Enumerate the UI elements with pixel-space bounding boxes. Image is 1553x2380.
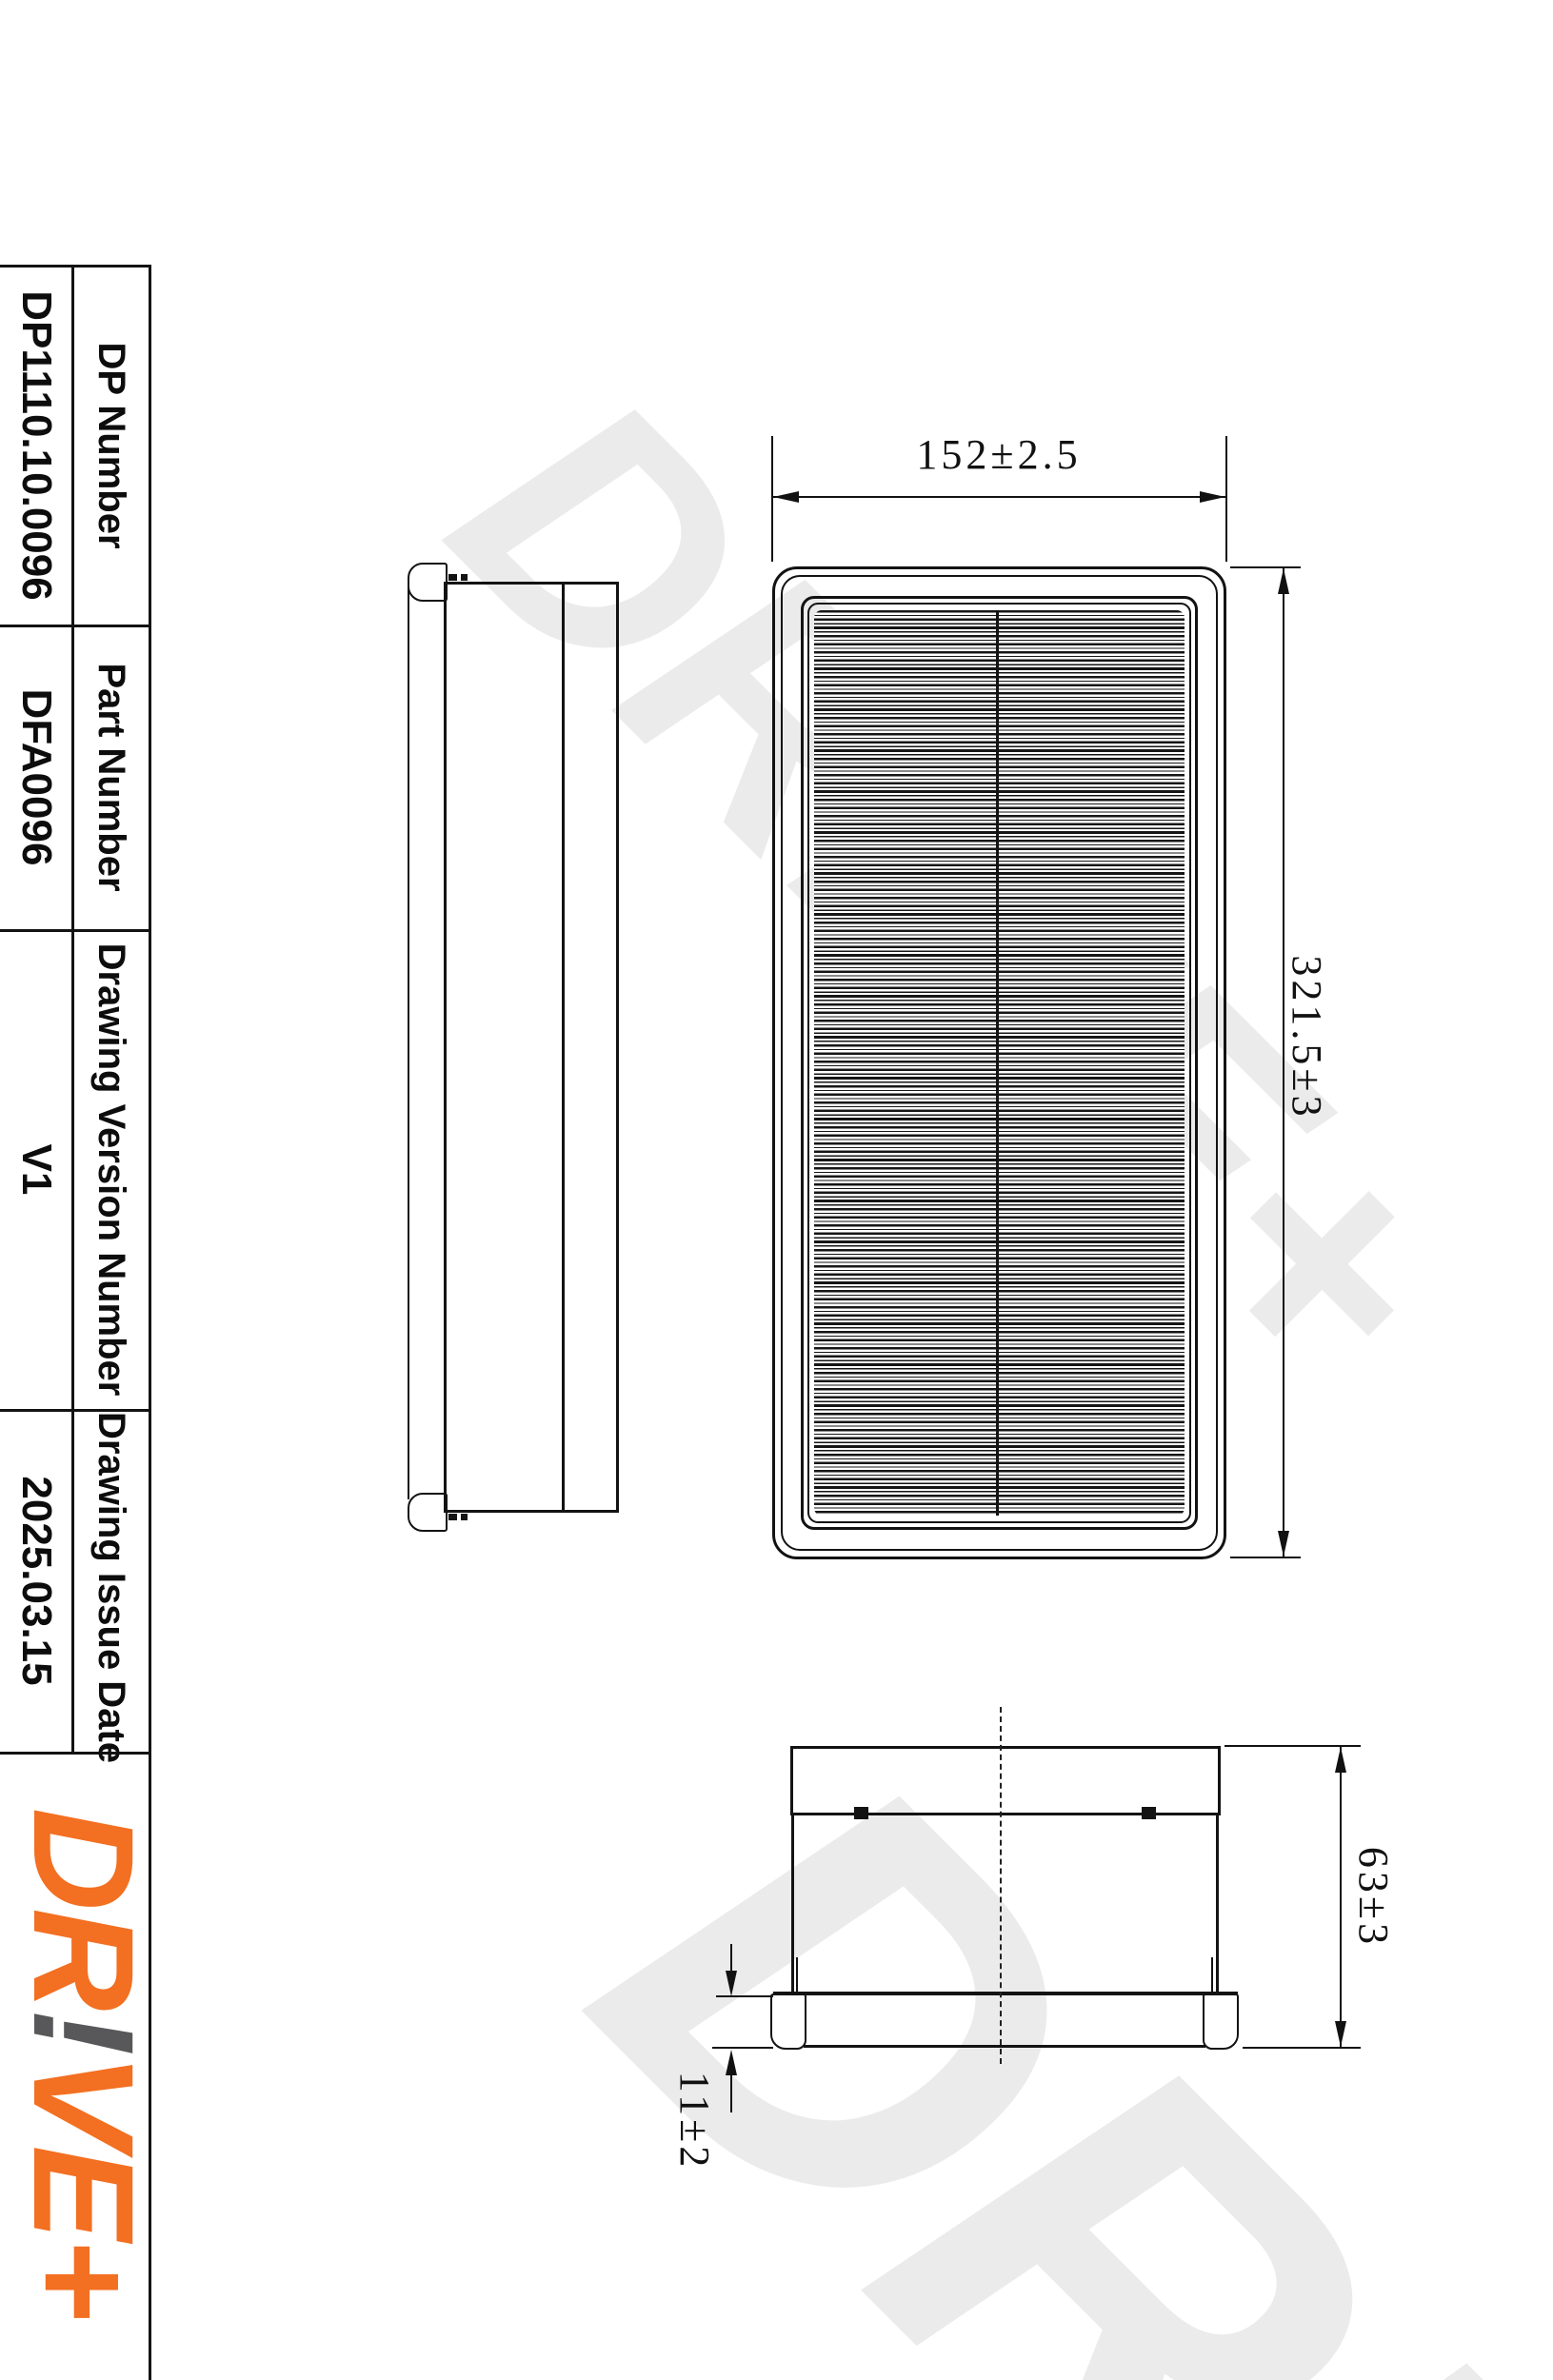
dim-length-text: 321.5±3	[1283, 904, 1331, 1171]
front-clip-tab	[1142, 1807, 1156, 1819]
front-media-band	[790, 1746, 1221, 1815]
dim-height-line	[1340, 1746, 1342, 2048]
front-clip-tab	[854, 1807, 868, 1819]
drawing-version-value: V1	[10, 932, 62, 1407]
side-view-tab-dash	[461, 574, 468, 581]
dim-height-text: 63±3	[1349, 1750, 1398, 2045]
plan-pleat-area	[814, 610, 1185, 1516]
dim-length-witness-bottom	[1230, 1557, 1301, 1558]
dp-number-label: DP Number	[88, 268, 135, 623]
titleblock-border-top	[0, 265, 151, 268]
dim-seal-ext-top	[716, 1995, 773, 1997]
side-view-left-outline	[408, 581, 409, 1499]
side-view-bottom-seal	[408, 1493, 448, 1532]
front-body-left	[791, 1815, 794, 1993]
part-number-label: Part Number	[88, 627, 135, 927]
dim-seal-arrow-down	[726, 1971, 737, 1996]
logo-exclamation: !	[4, 2009, 164, 2053]
dim-seal-text: 11±2	[670, 2035, 719, 2207]
dim-height-arrow-bottom	[1335, 2021, 1346, 2047]
issue-date-value: 2025.03.15	[10, 1412, 62, 1750]
brand-logo: DR!VE+	[0, 1763, 169, 2363]
dim-seal-leader-lower	[730, 2074, 732, 2112]
front-slot-mark	[796, 1957, 798, 1993]
front-slot-mark	[1211, 1957, 1213, 1993]
dim-length-arrow-top	[1278, 568, 1289, 594]
dp-number-value: DP1110.10.0096	[10, 268, 62, 623]
front-body-right	[1216, 1815, 1219, 1993]
dim-width-arrow-left	[773, 491, 799, 503]
front-gasket-bottom-line	[804, 2045, 1205, 2048]
issue-date-label: Drawing Issue Date	[88, 1412, 135, 1750]
dim-height-witness-bottom	[1243, 2047, 1361, 2049]
front-centerline	[1000, 1707, 1002, 2064]
dim-width-arrow-right	[1200, 491, 1225, 503]
logo-part2: VE+	[4, 2053, 164, 2318]
dim-width-witness-right	[1225, 436, 1227, 562]
titleblock-column-divider	[71, 265, 74, 1755]
dim-width-text: 152±2.5	[837, 430, 1161, 479]
dim-length-arrow-bottom	[1278, 1531, 1289, 1557]
side-view-tab-dash	[461, 1514, 468, 1520]
dim-length-witness-top	[1230, 566, 1301, 568]
dim-seal-arrow-up	[726, 2050, 737, 2075]
part-number-value: DFA0096	[10, 627, 62, 927]
dim-width-line	[772, 496, 1226, 498]
drawing-sheet: DR!VE+ DR!VE+ DP1110.10.0096 DP Number D…	[0, 0, 1553, 2380]
drawing-version-label: Drawing Version Number	[88, 932, 135, 1407]
side-view-top-seal	[408, 563, 448, 602]
side-view-frame-hatch-band	[562, 582, 619, 1513]
side-view-tab-dash	[448, 574, 457, 581]
side-view-tab-dash	[448, 1514, 457, 1520]
dim-height-arrow-top	[1335, 1747, 1346, 1773]
plan-center-divider	[996, 610, 999, 1516]
side-view-pleat-block	[444, 582, 565, 1513]
front-gasket-right	[1203, 1993, 1239, 2050]
front-flange-line	[773, 1992, 1238, 1995]
dim-seal-ext-bottom	[712, 2047, 773, 2049]
front-gasket-left	[770, 1993, 806, 2050]
logo-part1: DR	[4, 1808, 164, 2009]
